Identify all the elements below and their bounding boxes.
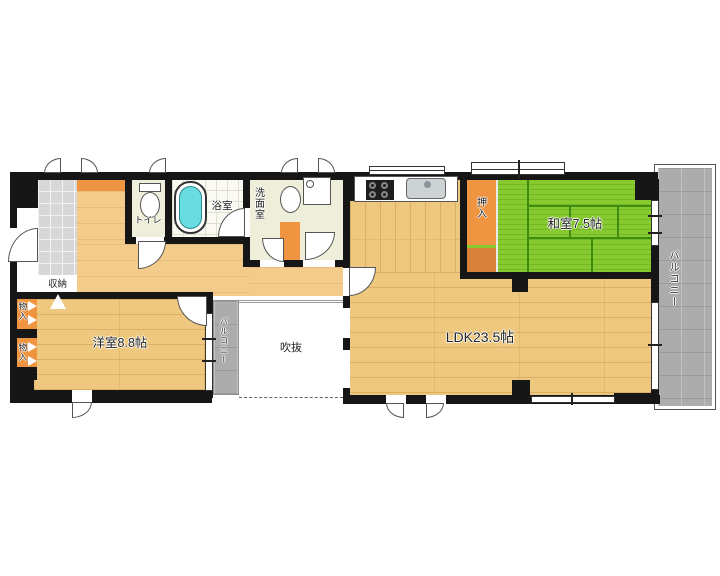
stove-burner (369, 191, 376, 198)
window-ldk-east (651, 302, 659, 390)
window-ldk-south (531, 396, 615, 403)
wall-washitsu-south (460, 272, 658, 279)
balcony-right (658, 168, 712, 406)
opening-washroom-b (303, 260, 335, 267)
stove-burner (381, 191, 388, 198)
toilet-icon (139, 183, 161, 192)
window-tick (518, 160, 520, 178)
stove-burner (369, 182, 376, 189)
window-tick (648, 232, 662, 234)
wall-bath-east (243, 179, 250, 208)
room-label-fukinuke: 吹抜 (239, 343, 343, 355)
stove-icon (366, 180, 394, 200)
swing-mark (72, 402, 92, 418)
wall-corridor-east (343, 240, 350, 268)
window-washitsu-top (471, 162, 565, 175)
swing-mark (386, 403, 404, 418)
wall-youshitsu-south (10, 390, 212, 403)
washing-machine-icon (303, 177, 331, 205)
window-washitsu-east (651, 200, 659, 246)
room-label-bath: 浴室 (204, 201, 240, 212)
room-label-toilet: トイレ (129, 216, 167, 225)
closet-label-shuunou: 収納 (40, 280, 75, 290)
window-kitchen-top (369, 166, 445, 175)
tatami-line (527, 237, 651, 239)
closet-label-oshiire: 押入 (474, 197, 485, 219)
closet-door-mark (50, 294, 66, 309)
swing-mark (426, 403, 444, 418)
corridor-east (250, 267, 343, 296)
window-tick (648, 344, 662, 346)
washbasin-icon (280, 186, 301, 213)
wall-toilet-west (125, 179, 132, 244)
washing-machine-dial (306, 180, 314, 188)
wall-bottomright-block (614, 393, 658, 404)
window-fukinuke-a (343, 308, 350, 338)
wall-pillar-mid (512, 279, 528, 292)
closet-label-monoire-lower: 物入 (18, 343, 27, 362)
bathtub-icon (174, 181, 207, 234)
bathtub-water (179, 186, 202, 229)
tatami-line (591, 237, 593, 272)
entrance-tile-floor (38, 179, 77, 275)
balcony-middle-label: バルコニー (219, 317, 228, 365)
wall-toilet-east (165, 179, 172, 244)
wall-bath-jog (243, 237, 250, 267)
closet-divider-line (496, 179, 498, 272)
stove-burner (381, 182, 388, 189)
floorplan: LDK23.5帖 和室7.5帖 洋室8.8帖 吹抜 トイレ 浴室 洗面室 押入 … (0, 0, 720, 576)
kitchen-sink-icon (406, 178, 446, 199)
window-tick (202, 338, 216, 340)
closet-door-mark (28, 301, 37, 311)
hallway-upper (77, 191, 125, 244)
window-tick (648, 215, 662, 217)
balcony-right-label: バルコニー (668, 250, 679, 308)
window-tick (202, 360, 216, 362)
swing-mark (81, 158, 98, 173)
window-tick (571, 393, 573, 405)
window-fukinuke-b (343, 350, 350, 388)
door-entrance-swing (8, 228, 38, 262)
wall-monoire-divider (13, 329, 37, 338)
room-label-washroom: 洗面室 (252, 187, 263, 220)
closet-lower (467, 248, 497, 272)
room-label-youshitsu: 洋室8.8帖 (58, 337, 182, 350)
swing-mark (318, 158, 335, 173)
room-label-ldk: LDK23.5帖 (410, 330, 550, 345)
sink-faucet (424, 181, 431, 188)
wall-oshiire-west (460, 179, 467, 272)
tatami-line (527, 205, 651, 207)
wall-pillar-south (512, 380, 530, 396)
window-midline (370, 170, 444, 171)
closet-door-mark (28, 315, 37, 325)
swing-mark (149, 158, 166, 173)
swing-mark (44, 158, 61, 173)
room-label-washitsu: 和室7.5帖 (510, 218, 640, 231)
closet-door-mark (28, 356, 37, 366)
closet-label-monoire-upper: 物入 (18, 302, 27, 321)
wall-left-upper (10, 172, 17, 228)
closet-door-mark (28, 342, 37, 352)
swing-mark (281, 158, 298, 173)
shoe-cabinet (77, 179, 125, 191)
wall-monoire-bottom (13, 367, 37, 380)
